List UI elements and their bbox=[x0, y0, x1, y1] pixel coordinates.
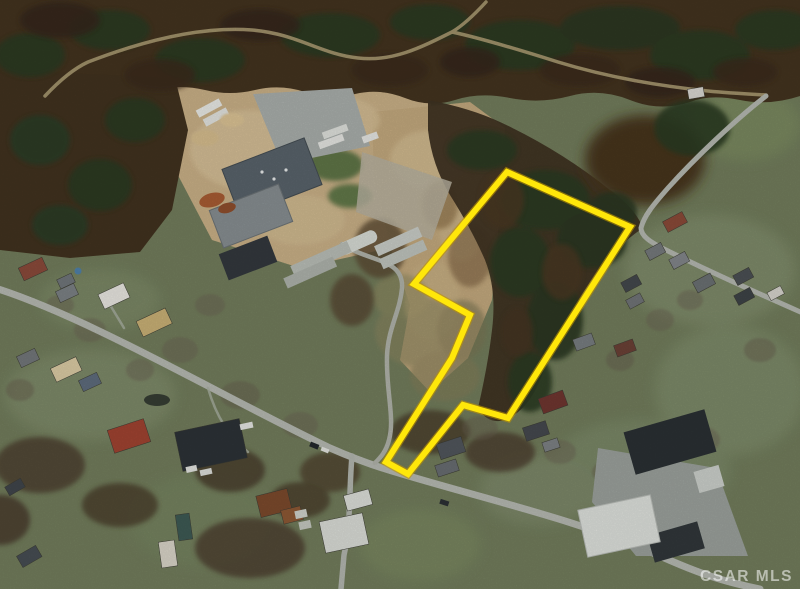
aerial-photo: CSAR MLS bbox=[0, 0, 800, 589]
photo-grain-overlay bbox=[0, 0, 800, 589]
aerial-photo-frame: CSAR MLS bbox=[0, 0, 800, 589]
watermark-text: CSAR MLS bbox=[700, 568, 793, 585]
